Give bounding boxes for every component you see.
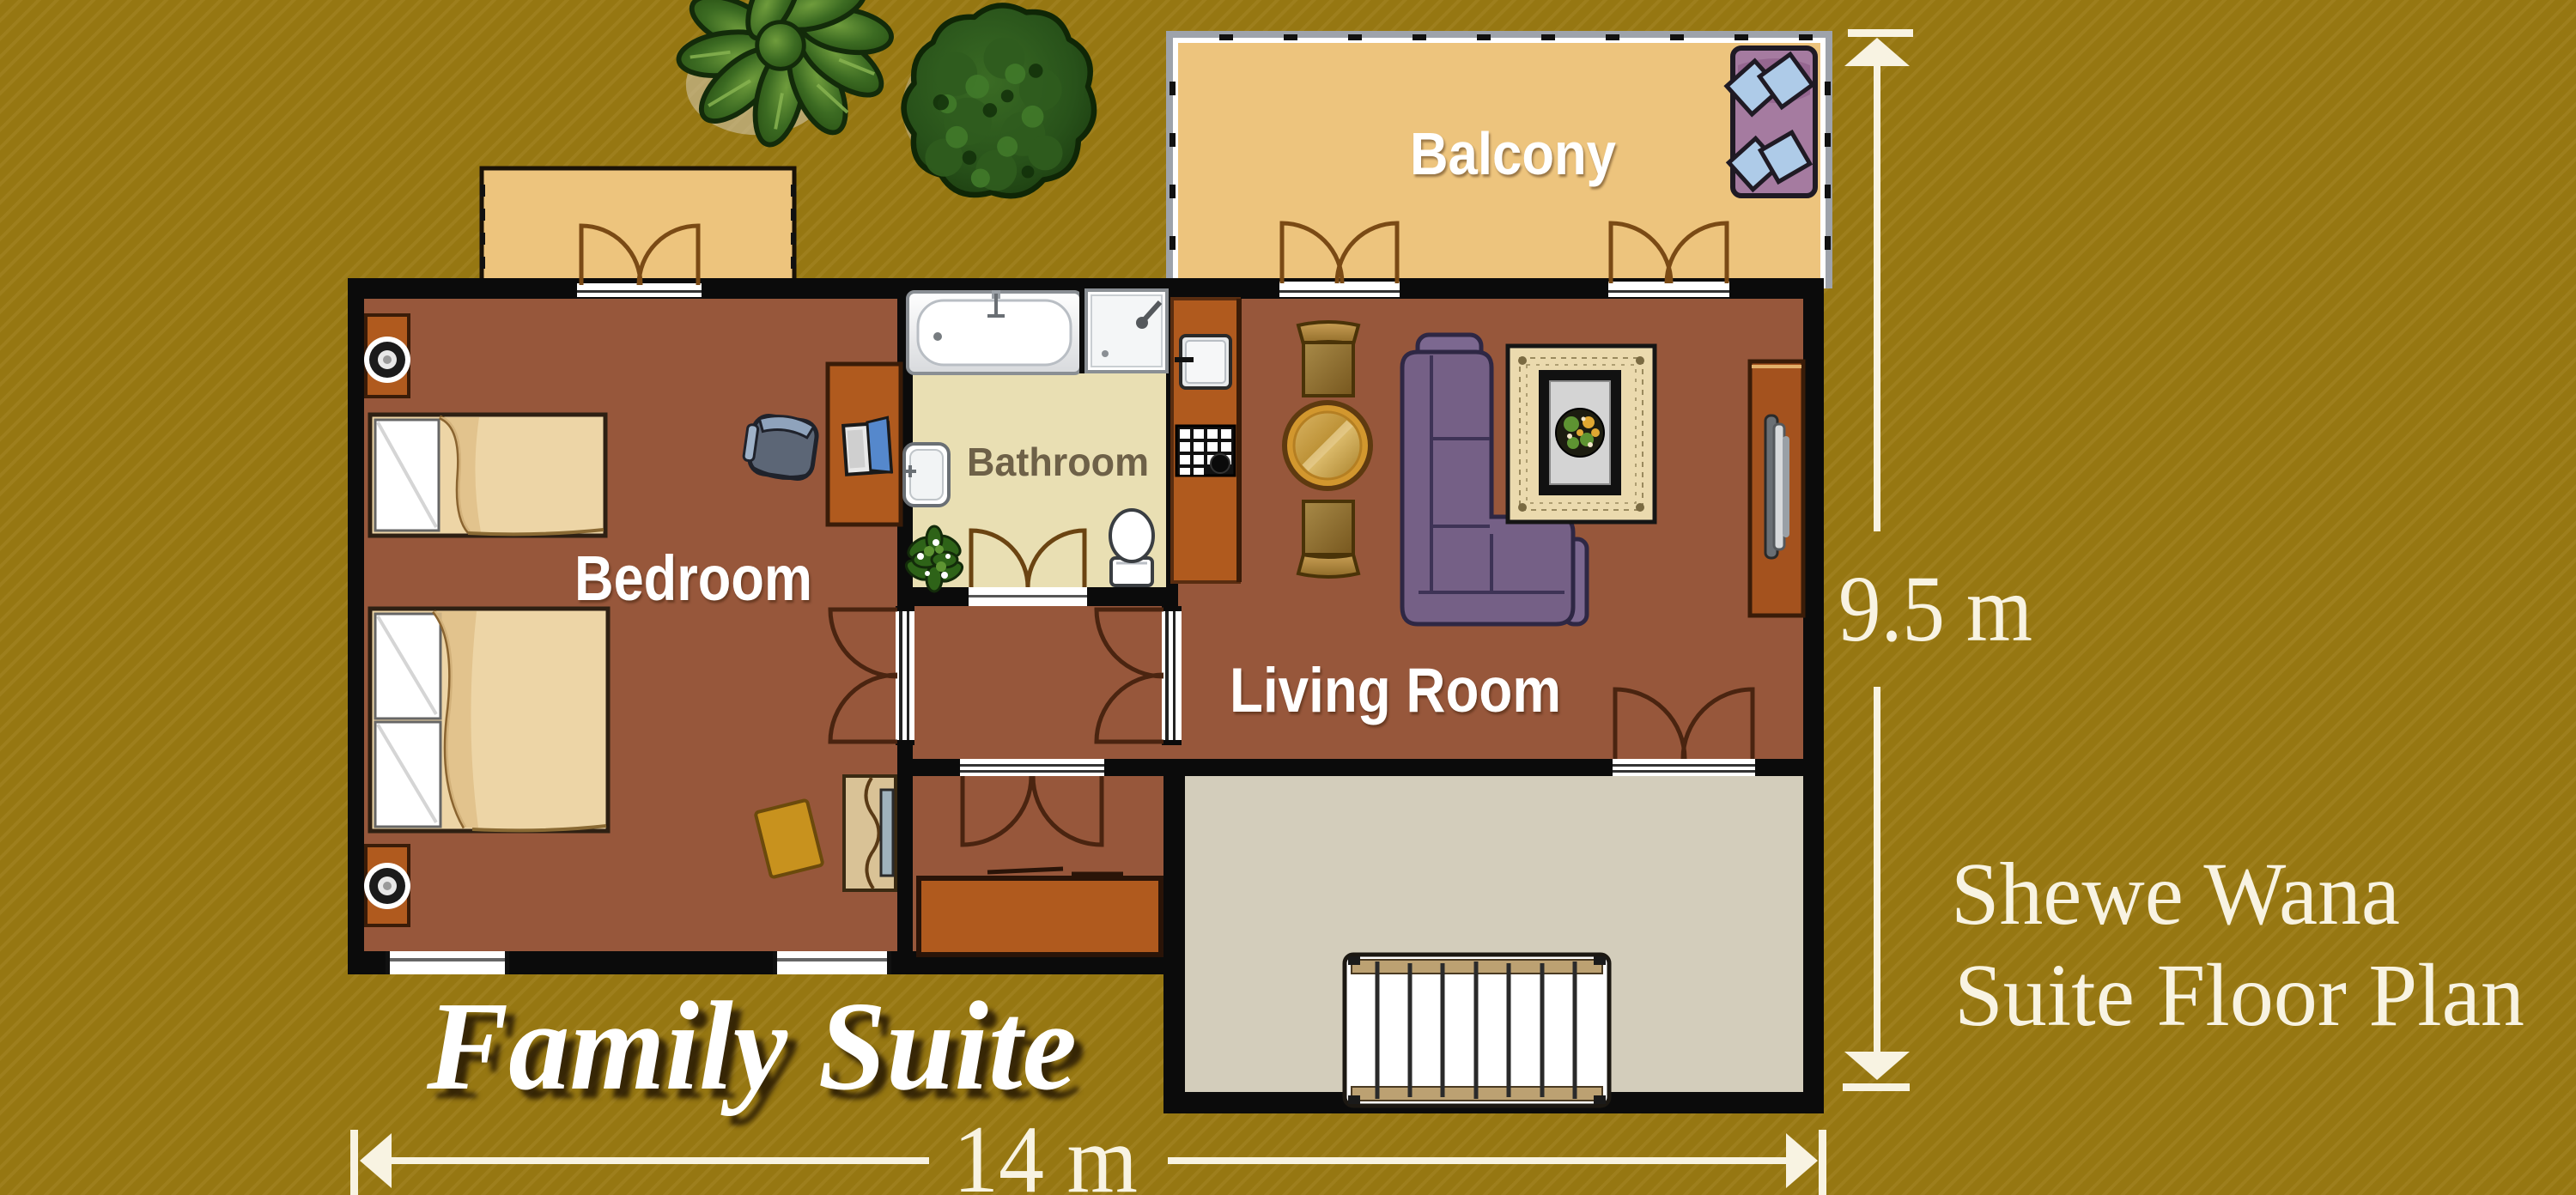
svg-text:Suite Floor Plan: Suite Floor Plan [1954,946,2524,1045]
svg-text:Family Suite: Family Suite [426,976,1077,1117]
svg-text:Bathroom: Bathroom [967,440,1149,484]
svg-text:Shewe Wana: Shewe Wana [1951,845,2400,943]
svg-text:9.5 m: 9.5 m [1838,556,2032,661]
svg-text:Living Room: Living Room [1230,656,1561,725]
svg-text:14 m: 14 m [953,1107,1138,1195]
svg-text:Bedroom: Bedroom [574,543,812,614]
svg-text:Balcony: Balcony [1410,120,1616,187]
